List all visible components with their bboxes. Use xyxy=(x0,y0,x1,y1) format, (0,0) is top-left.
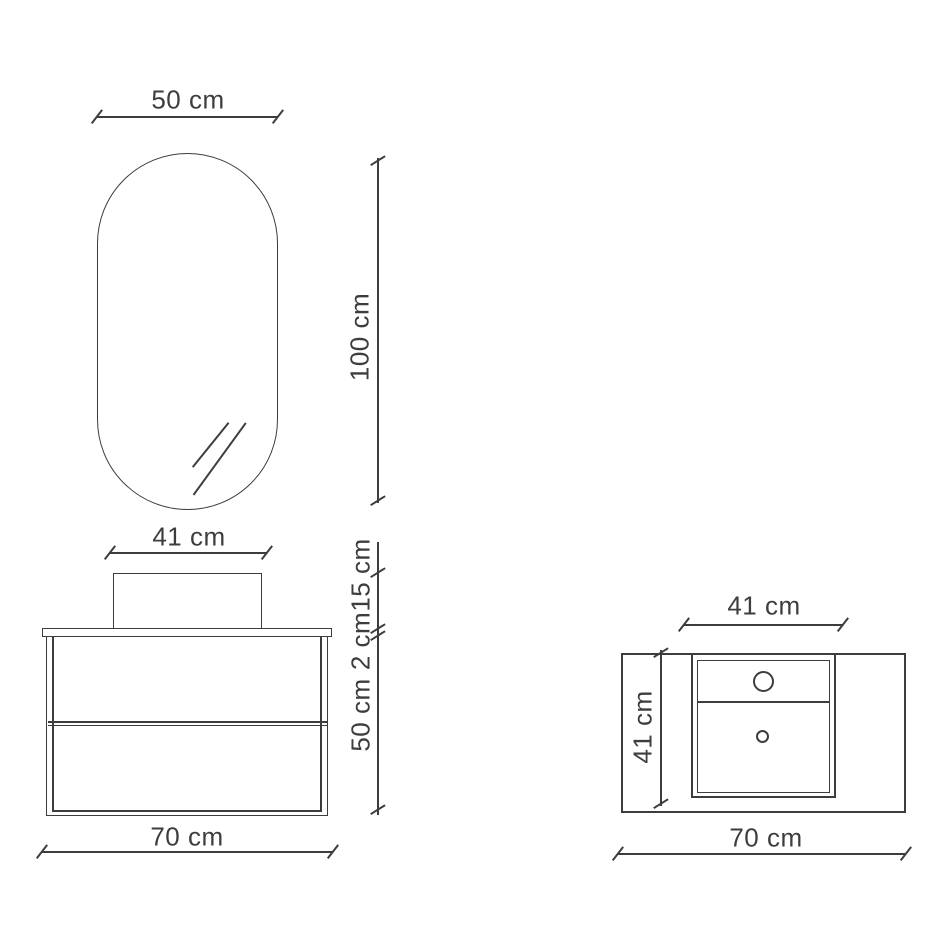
faucet-hole-circle xyxy=(753,671,774,692)
dim-tick xyxy=(370,155,385,165)
dim-tick xyxy=(370,495,385,505)
dim-label-countertop-thickness: 2 cm xyxy=(346,612,377,670)
dim-line-front-total-width xyxy=(42,851,333,853)
dim-label-basin-width: 41 cm xyxy=(152,522,225,553)
dim-tick xyxy=(261,546,273,560)
dim-tick xyxy=(327,845,339,859)
dim-label-front-total-width: 70 cm xyxy=(150,822,223,853)
dim-tick xyxy=(900,847,912,861)
drain-hole-circle xyxy=(756,730,769,743)
dim-label-mirror-height: 100 cm xyxy=(345,293,376,381)
vanity-technical-drawing: 50 cm 100 cm 41 cm 15 cm 2 cm 50 cm 70 c… xyxy=(0,0,950,950)
dim-label-mirror-width: 50 cm xyxy=(151,85,224,116)
dim-label-top-basin-width: 41 cm xyxy=(727,591,800,622)
drawer-divider-line-lower xyxy=(48,725,327,727)
dim-line-top-depth xyxy=(660,650,662,806)
drawer-divider-line-upper xyxy=(48,721,327,723)
dim-label-cabinet-height: 50 cm xyxy=(346,678,377,751)
dim-line-mirror-width xyxy=(97,116,278,118)
dim-tick xyxy=(36,845,48,859)
dim-line-top-total-width xyxy=(618,853,906,855)
dim-tick xyxy=(678,618,690,632)
dim-label-top-depth: 41 cm xyxy=(628,690,659,763)
basin-front-outline xyxy=(113,573,262,629)
mirror-outline xyxy=(97,153,278,510)
dim-line-top-basin-width xyxy=(684,624,843,626)
cabinet-inner-panel-line-bottom xyxy=(52,810,322,812)
dim-tick xyxy=(370,804,385,814)
dim-line-mirror-height xyxy=(377,158,379,503)
dim-line-heights-stack xyxy=(377,542,379,815)
dim-tick xyxy=(272,110,284,124)
basin-deck-divider-line xyxy=(698,701,829,703)
dim-tick xyxy=(91,110,103,124)
dim-line-basin-width xyxy=(110,552,267,554)
dim-tick xyxy=(104,546,116,560)
dim-label-top-total-width: 70 cm xyxy=(729,823,802,854)
dim-tick xyxy=(612,847,624,861)
dim-tick xyxy=(837,618,849,632)
